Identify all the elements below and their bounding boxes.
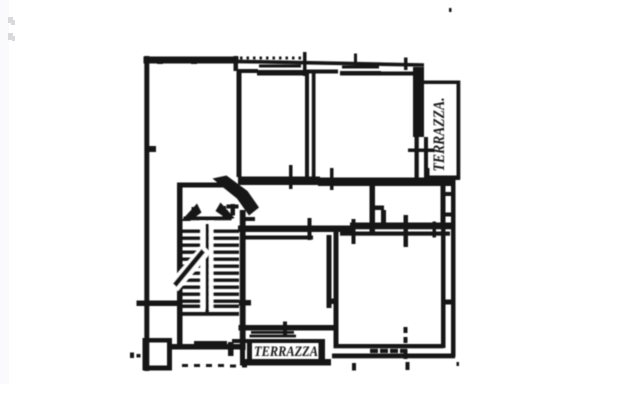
svg-text:TERRAZZA: TERRAZZA [254,344,318,360]
svg-text:TERRAZZA.: TERRAZZA. [431,98,448,172]
